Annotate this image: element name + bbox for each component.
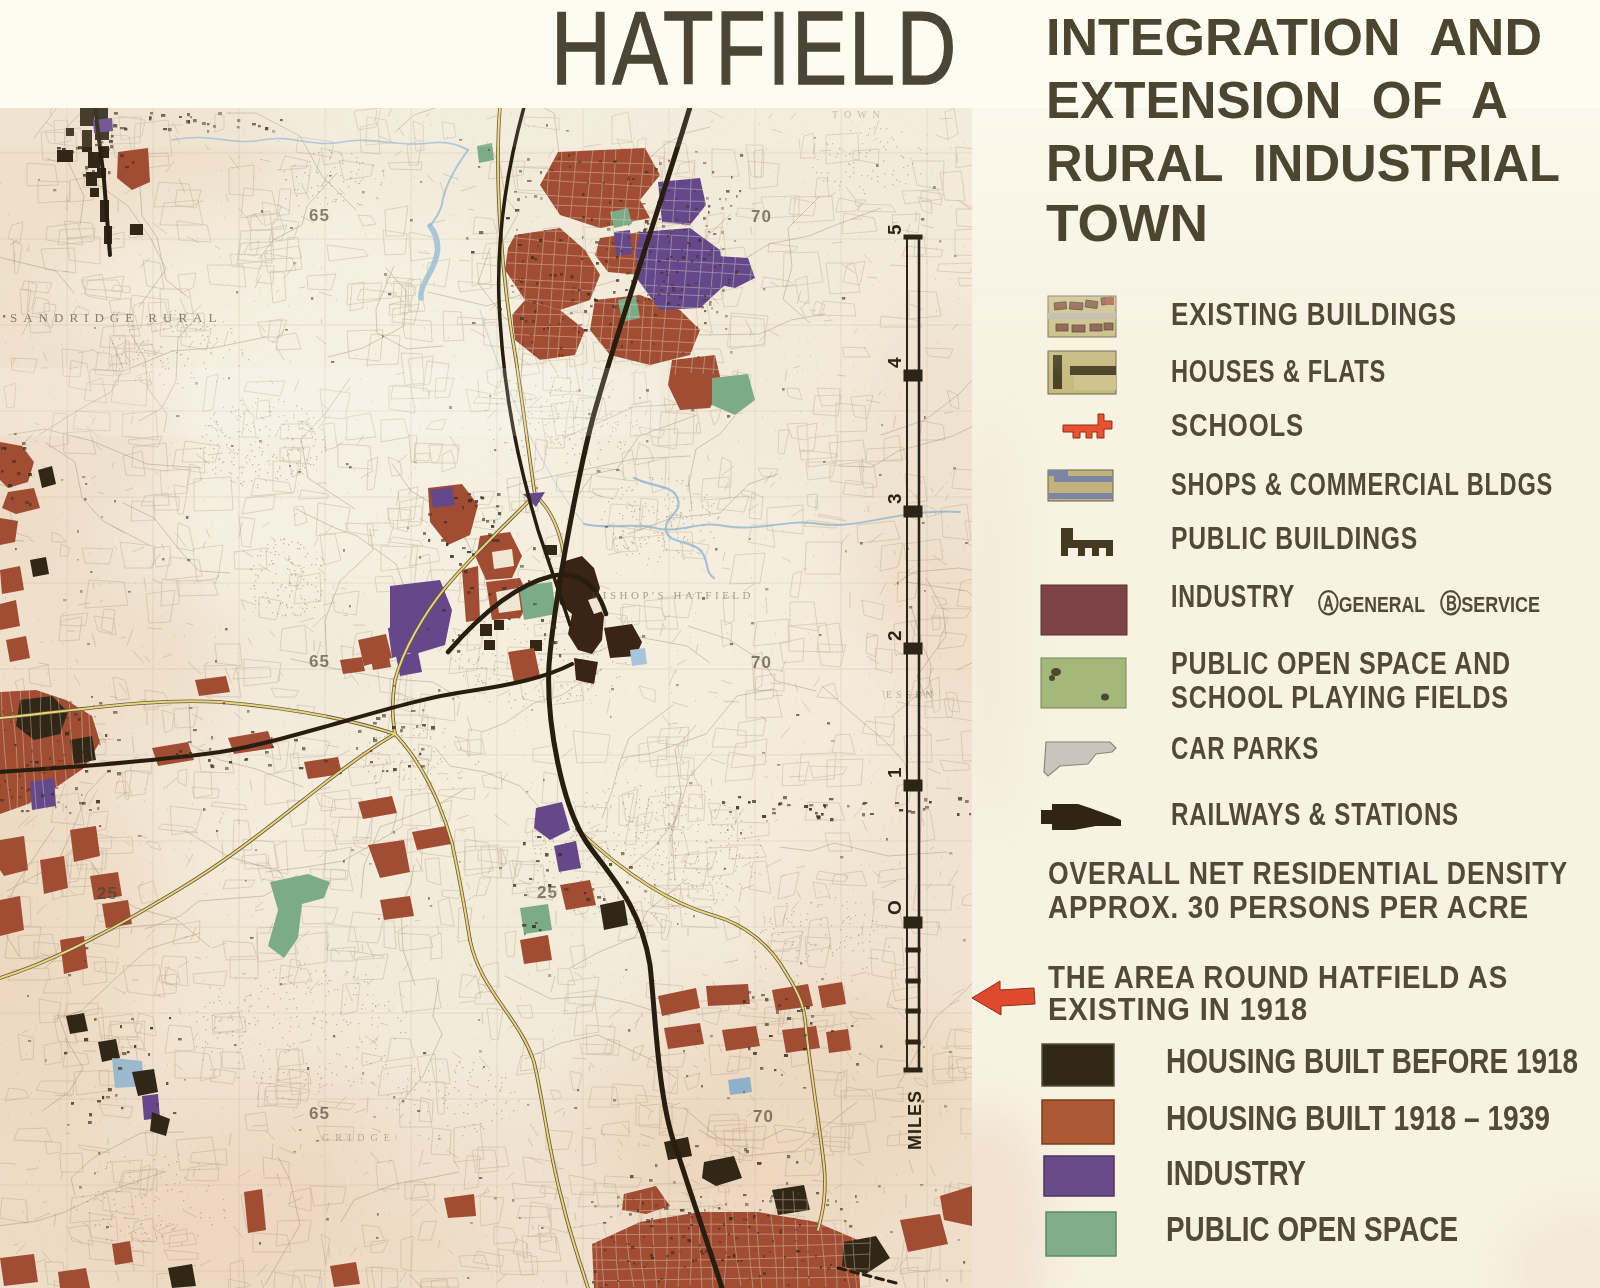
svg-text:2: 2	[884, 630, 905, 641]
svg-text:65: 65	[309, 1104, 330, 1123]
svg-text:5: 5	[884, 224, 905, 235]
svg-text:ESSEN: ESSEN	[886, 689, 937, 700]
svg-text:70: 70	[753, 1107, 774, 1126]
svg-text:25: 25	[97, 884, 118, 903]
svg-text:65: 65	[309, 206, 330, 225]
svg-text:GRIDGE: GRIDGE	[322, 1132, 396, 1143]
svg-text:1: 1	[884, 767, 905, 778]
svg-text:70: 70	[751, 653, 772, 672]
svg-text:25: 25	[537, 883, 558, 902]
svg-text:70: 70	[751, 207, 772, 226]
svg-text:65: 65	[309, 652, 330, 671]
svg-text:3: 3	[884, 493, 905, 504]
svg-text:BISHOP'S HATFIELD: BISHOP'S HATFIELD	[592, 589, 754, 601]
svg-text:O: O	[884, 900, 905, 915]
svg-text:4: 4	[884, 357, 905, 368]
svg-text:MILES: MILES	[905, 1090, 925, 1150]
svg-text:SANDRIDGE RURAL: SANDRIDGE RURAL	[10, 310, 222, 325]
